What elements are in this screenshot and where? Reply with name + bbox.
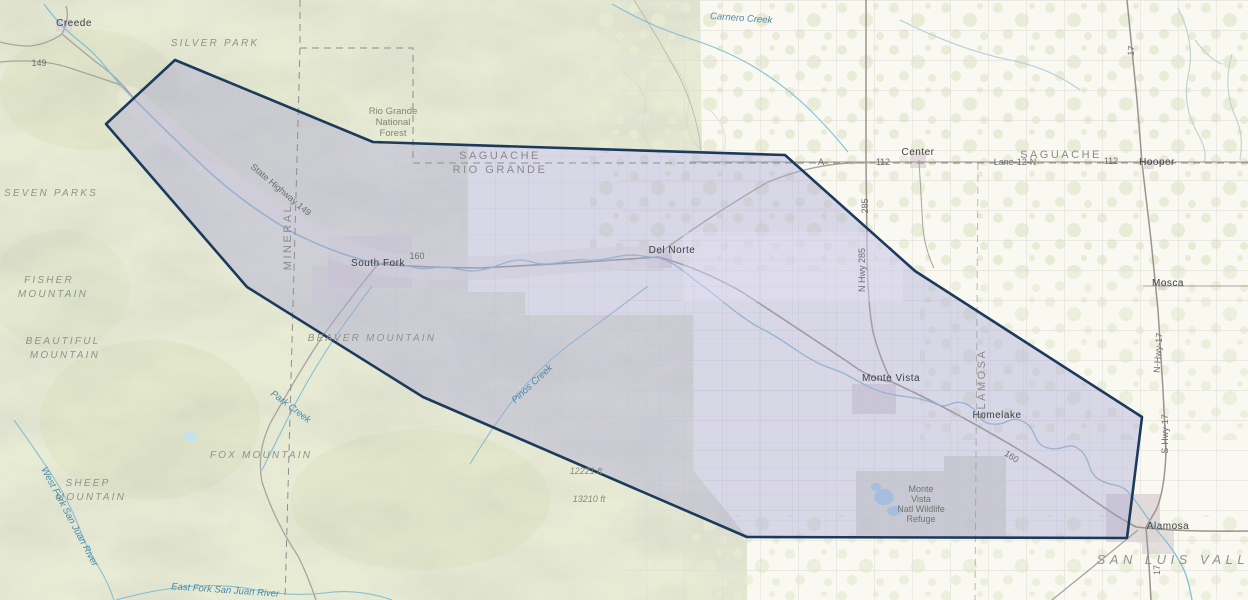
map-label-hooper: Hooper <box>1139 157 1175 168</box>
map-label-17: 17 <box>1126 45 1137 56</box>
map-label-silver-park: SILVER PARK <box>171 38 260 49</box>
map-label-a: A <box>818 157 824 167</box>
map-label-mountain: MOUNTAIN <box>30 350 100 361</box>
map-label-285: 285 <box>860 198 870 213</box>
mountain-lake <box>183 432 197 442</box>
map-label-monte-vista: Monte Vista <box>862 373 920 384</box>
map-canvas[interactable]: CreedeSouth ForkDel NorteMonte VistaCent… <box>0 0 1248 600</box>
map-label-112: 112 <box>1104 156 1118 166</box>
map-label-center: Center <box>901 147 934 158</box>
map-label-alamosa: Alamosa <box>1147 521 1189 532</box>
map-label-12221-ft: 12221 ft <box>570 466 603 476</box>
map-label-fisher: FISHER <box>24 275 74 286</box>
map-label-13210-ft: 13210 ft <box>573 494 606 504</box>
map-label-south-fork: South Fork <box>351 258 405 269</box>
map-label-forest: Forest <box>380 128 407 139</box>
map-label-17: 17 <box>1152 565 1162 575</box>
map-label-112: 112 <box>876 157 890 167</box>
map-label-national: National <box>376 117 411 128</box>
map-label-mosca: Mosca <box>1152 278 1184 289</box>
map-label-creede: Creede <box>56 18 92 29</box>
map-label-mineral: MINERAL <box>282 204 294 270</box>
map-label-fox-mountain: FOX MOUNTAIN <box>210 450 312 461</box>
map-label-san-luis-valley: SAN LUIS VALLEY <box>1097 552 1248 567</box>
map-label-vista: Vista <box>911 494 931 504</box>
map-label-beaver-mountain: BEAVER MOUNTAIN <box>308 333 436 344</box>
map-label-beautiful: BEAUTIFUL <box>26 336 101 347</box>
map-label-sheep: SHEEP <box>66 478 111 489</box>
map-label-rio-grande: RIO GRANDE <box>453 164 548 176</box>
map-label-mountain: MOUNTAIN <box>18 289 88 300</box>
map-label-rio-grande: Rio Grande <box>369 106 418 117</box>
map-label-seven-parks: SEVEN PARKS <box>4 188 98 199</box>
map-label-saguache: SAGUACHE <box>459 150 541 162</box>
map-label-160: 160 <box>409 251 424 261</box>
map-label-lane-12-n: Lane-12-N <box>994 157 1037 167</box>
map-label-alamosa: ALAMOSA <box>976 349 988 420</box>
map-label-refuge: Refuge <box>906 514 935 524</box>
map-label-natl-wildlife: Natl Wildlife <box>897 504 945 514</box>
map-label-149: 149 <box>31 58 46 68</box>
topo-map-svg: CreedeSouth ForkDel NorteMonte VistaCent… <box>0 0 1248 600</box>
map-label-del-norte: Del Norte <box>649 245 696 256</box>
map-label-s-hwy-17: S-Hwy-17 <box>1160 414 1170 454</box>
map-label-monte: Monte <box>908 484 933 494</box>
map-label-n-hwy-285: N Hwy 285 <box>857 248 867 292</box>
